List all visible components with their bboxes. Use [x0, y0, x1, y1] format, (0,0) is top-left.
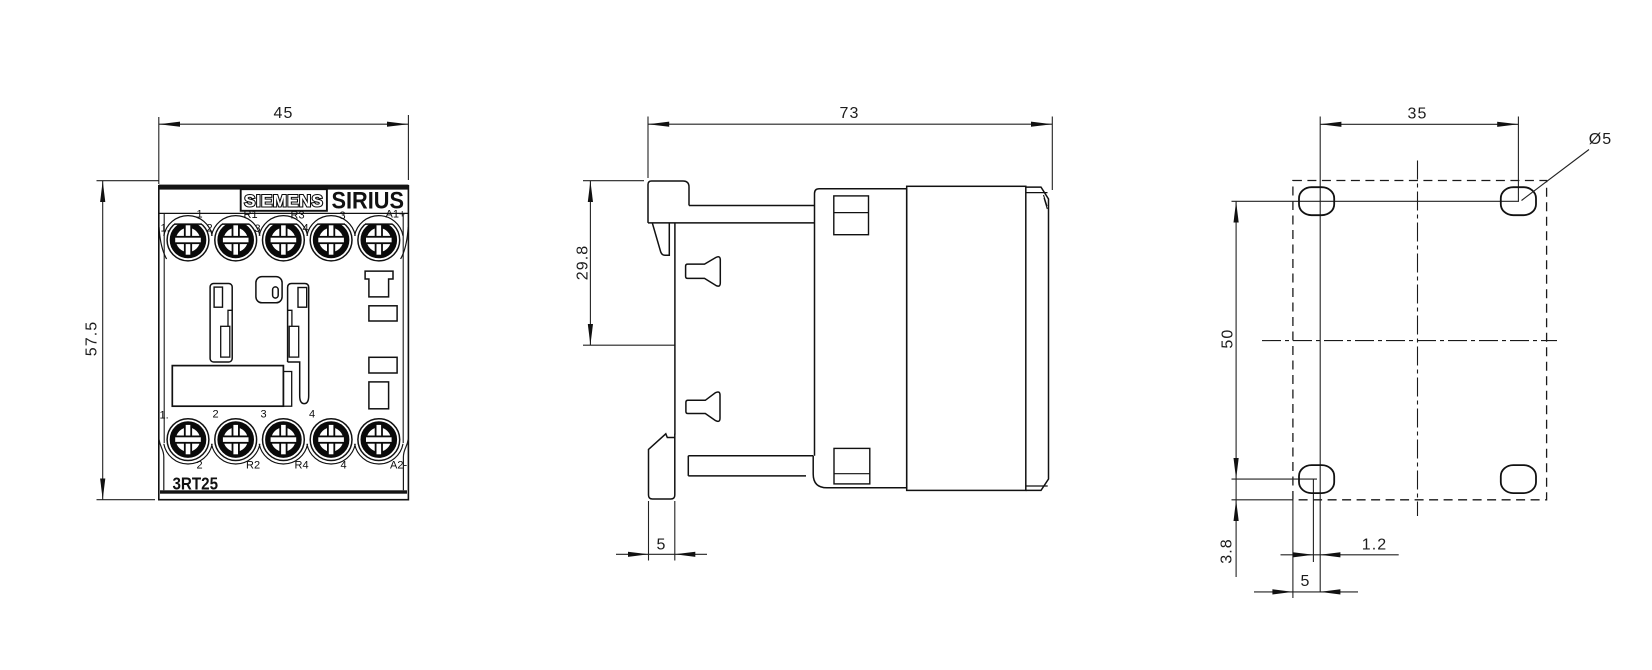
svg-text:3.8: 3.8	[1218, 538, 1235, 564]
svg-text:R2: R2	[246, 460, 260, 472]
svg-text:A1+: A1+	[386, 209, 406, 221]
svg-text:R1: R1	[244, 209, 258, 221]
svg-text:5: 5	[657, 537, 667, 554]
svg-text:A2-: A2-	[390, 460, 407, 472]
svg-text:2: 2	[197, 460, 203, 472]
svg-text:2: 2	[213, 409, 219, 421]
svg-text:Ø5: Ø5	[1589, 131, 1613, 148]
svg-text:R4: R4	[295, 460, 309, 472]
svg-text:SIEMENS: SIEMENS	[244, 193, 323, 211]
svg-text:1.: 1.	[160, 410, 169, 422]
svg-text:57.5: 57.5	[83, 321, 100, 357]
svg-text:3: 3	[255, 223, 261, 235]
svg-text:35: 35	[1408, 106, 1428, 123]
svg-text:1.: 1.	[161, 223, 170, 235]
svg-text:45: 45	[274, 105, 294, 122]
svg-text:2: 2	[207, 223, 213, 235]
svg-text:4: 4	[303, 223, 309, 235]
svg-text:1.2: 1.2	[1362, 537, 1388, 554]
svg-text:50: 50	[1220, 329, 1237, 349]
svg-text:3: 3	[261, 409, 267, 421]
svg-text:4: 4	[309, 409, 315, 421]
svg-text:5: 5	[1301, 573, 1311, 590]
svg-text:29.8: 29.8	[575, 245, 592, 281]
svg-text:4: 4	[341, 460, 347, 472]
svg-text:R3: R3	[291, 210, 305, 222]
svg-text:1: 1	[197, 209, 203, 221]
svg-text:73: 73	[840, 105, 860, 122]
svg-text:3: 3	[340, 210, 346, 222]
